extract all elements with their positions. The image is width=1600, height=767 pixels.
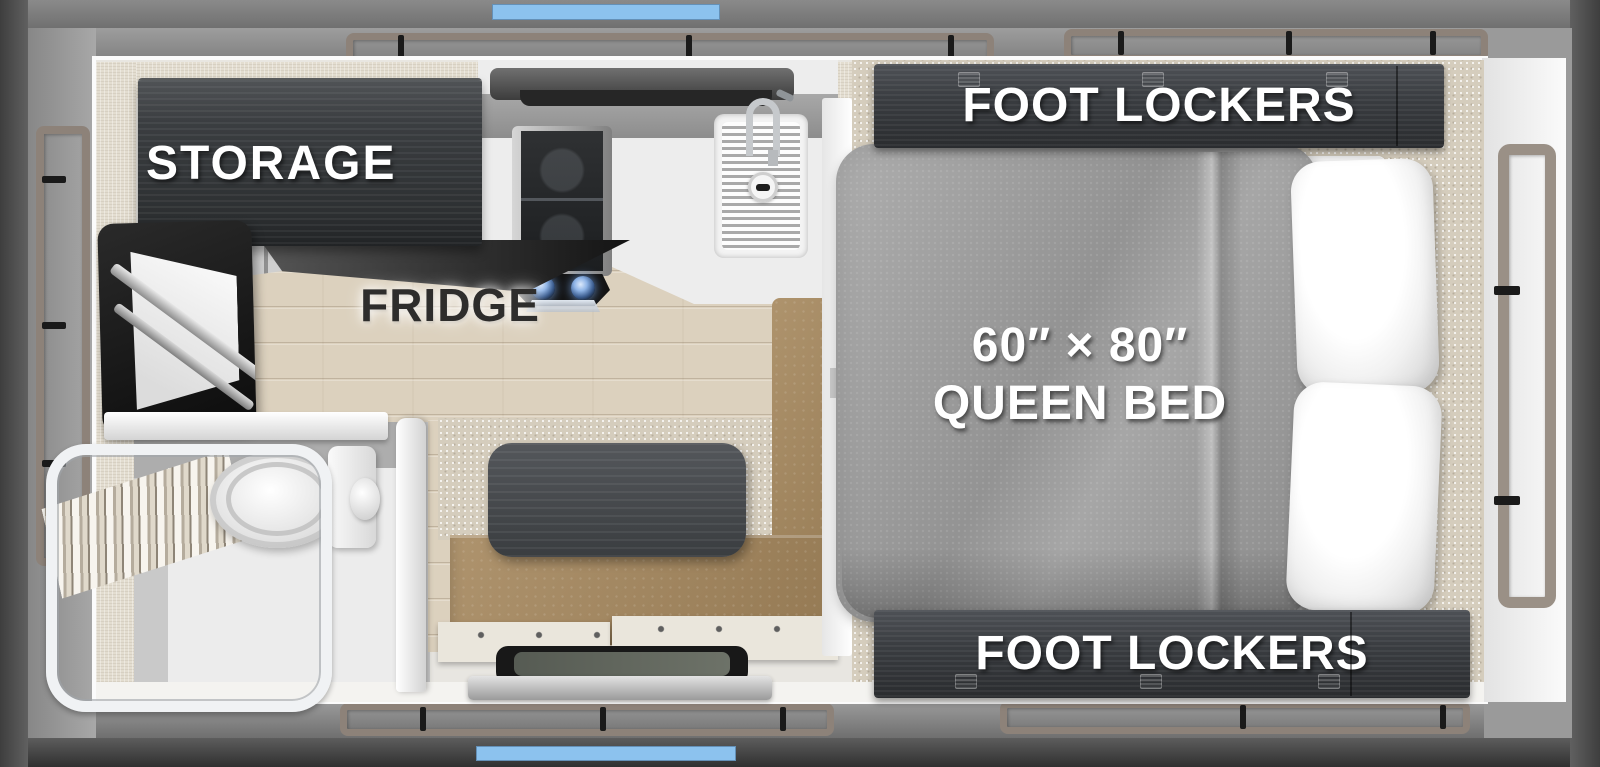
storage-label: STORAGE [146, 140, 368, 188]
window-bottom-right [1000, 701, 1470, 734]
exterior-left-edge [0, 0, 28, 767]
locker-latch-icon [1326, 72, 1348, 87]
window-latch-icon [600, 707, 606, 731]
locker-latch-icon [1142, 72, 1164, 87]
bathroom-counter [104, 412, 388, 440]
range-hood-vent [520, 90, 772, 106]
foot-locker-bottom: FOOT LOCKERS [874, 610, 1470, 698]
window-latch-icon [1494, 496, 1520, 505]
window-latch-icon [42, 322, 66, 329]
window-latch-icon [1494, 286, 1520, 295]
window-latch-icon [42, 176, 66, 183]
camper-floorplan: STORAGE FRIDGE FOOT LOCKERS [0, 0, 1600, 767]
foot-lockers-bottom-label: FOOT LOCKERS [975, 630, 1368, 678]
pillow [1285, 381, 1443, 615]
bathroom-partition-wall [396, 418, 426, 692]
shower-curtain-track [46, 444, 332, 712]
accent-trim-top [492, 4, 720, 20]
window-latch-icon [1430, 31, 1436, 55]
faucet-stem [768, 150, 778, 166]
exterior-top-band [0, 0, 1600, 30]
queen-bed-label: 60″ × 80″ QUEEN BED [928, 322, 1232, 428]
foot-lockers-top-label: FOOT LOCKERS [962, 82, 1355, 130]
locker-latch-icon [955, 674, 977, 689]
window-latch-icon [780, 707, 786, 731]
fridge-label: FRIDGE [348, 282, 552, 328]
dinette-table [488, 443, 746, 557]
window-latch-icon [1240, 705, 1246, 729]
burner-knob-icon [571, 276, 595, 300]
window-latch-icon [1118, 31, 1124, 55]
bed-type-label: QUEEN BED [928, 380, 1232, 428]
locker-seam [1396, 66, 1398, 146]
bed-size-label: 60″ × 80″ [928, 322, 1232, 370]
comforter-bottom-shade [842, 548, 1310, 618]
toilet-flush-button [350, 478, 380, 520]
locker-latch-icon [958, 72, 980, 87]
locker-seam [1350, 612, 1352, 696]
window-latch-icon [1440, 705, 1446, 729]
window-latch-icon [1286, 31, 1292, 55]
exterior-bottom-band [0, 734, 1600, 767]
exterior-right-edge [1570, 0, 1600, 767]
entry-door-glass [514, 652, 730, 676]
accent-trim-bottom [476, 746, 736, 761]
sink-drain-slot [756, 184, 770, 191]
locker-latch-icon [1140, 674, 1162, 689]
window-bottom-left [340, 703, 834, 736]
foot-locker-top: FOOT LOCKERS [874, 64, 1444, 148]
pillow [1290, 158, 1440, 397]
window-latch-icon [420, 707, 426, 731]
faucet-icon [746, 98, 780, 156]
tv [97, 220, 256, 434]
stove-glass-seam [521, 198, 603, 201]
locker-latch-icon [1318, 674, 1340, 689]
window-right [1498, 144, 1556, 608]
entry-door-handle [468, 676, 772, 700]
